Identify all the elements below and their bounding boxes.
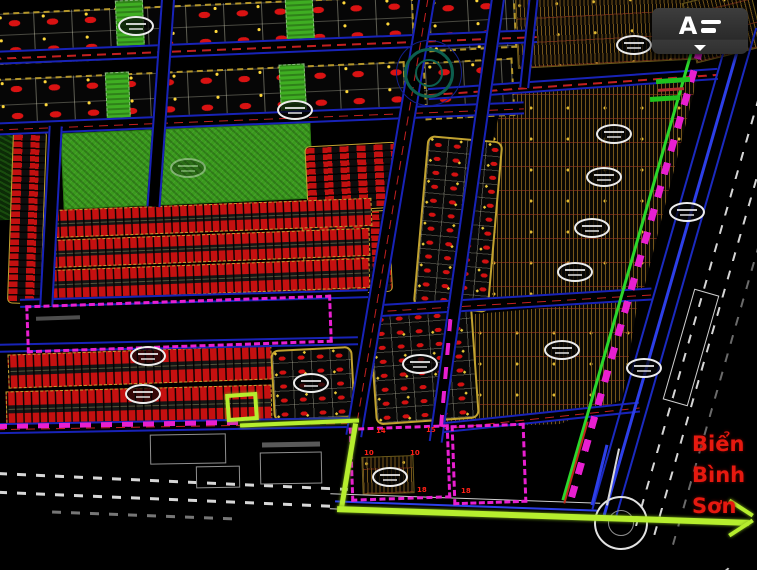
autocad-overflow-button[interactable]: A xyxy=(652,8,748,54)
existing-road-dashed xyxy=(0,491,343,508)
plot-stamp xyxy=(402,354,438,374)
plot-stamp xyxy=(574,218,610,238)
plot-number: 10 xyxy=(410,450,420,457)
annotation-line-3: Sơn xyxy=(692,491,745,522)
map-annotation: Biển Bình Sơn xyxy=(692,429,745,522)
menu-bars-icon xyxy=(701,16,721,37)
building-outline xyxy=(150,433,227,464)
planning-boundary xyxy=(349,424,452,501)
roundabout-exit-curve xyxy=(635,523,742,570)
plot-number: 18 xyxy=(461,488,471,495)
highlighted-plot xyxy=(225,392,259,422)
plot-stamp xyxy=(118,16,154,36)
plot-stamp xyxy=(277,100,313,120)
building-outline xyxy=(196,466,240,489)
plot-number: 14 xyxy=(376,428,386,435)
plot-stamp xyxy=(293,373,329,393)
plot-stamp xyxy=(586,167,622,187)
plot-stamp xyxy=(669,202,705,222)
annotation-line-1: Biển xyxy=(692,429,745,460)
plot-stamp xyxy=(557,262,593,282)
approach-line xyxy=(591,445,609,506)
existing-road-dashed xyxy=(52,510,237,520)
plot-stamp xyxy=(544,340,580,360)
plot-stamp xyxy=(170,158,206,178)
app-viewport: 141510101818 Biển Bình Sơn A xyxy=(0,0,757,570)
building-outline xyxy=(260,451,323,484)
roundabout-inner xyxy=(608,510,634,536)
plot-stamp xyxy=(130,346,166,366)
cad-canvas[interactable]: 141510101818 xyxy=(0,0,757,570)
plot-stamp xyxy=(596,124,632,144)
plot-stamp xyxy=(125,384,161,404)
plot-stamp xyxy=(626,358,662,378)
plot-number: 15 xyxy=(426,427,436,434)
chevron-down-icon xyxy=(694,45,706,51)
plot-stamp xyxy=(372,467,408,487)
corridor-strip-outline xyxy=(663,289,720,407)
small-label xyxy=(262,441,320,447)
annotation-line-2: Bình xyxy=(692,460,745,491)
plot-number: 18 xyxy=(417,487,427,494)
autocad-logo: A xyxy=(652,11,748,41)
plot-number: 10 xyxy=(364,450,374,457)
autocad-logo-a: A xyxy=(679,14,698,38)
intersection-ring xyxy=(415,59,443,87)
plot-stamp xyxy=(616,35,652,55)
